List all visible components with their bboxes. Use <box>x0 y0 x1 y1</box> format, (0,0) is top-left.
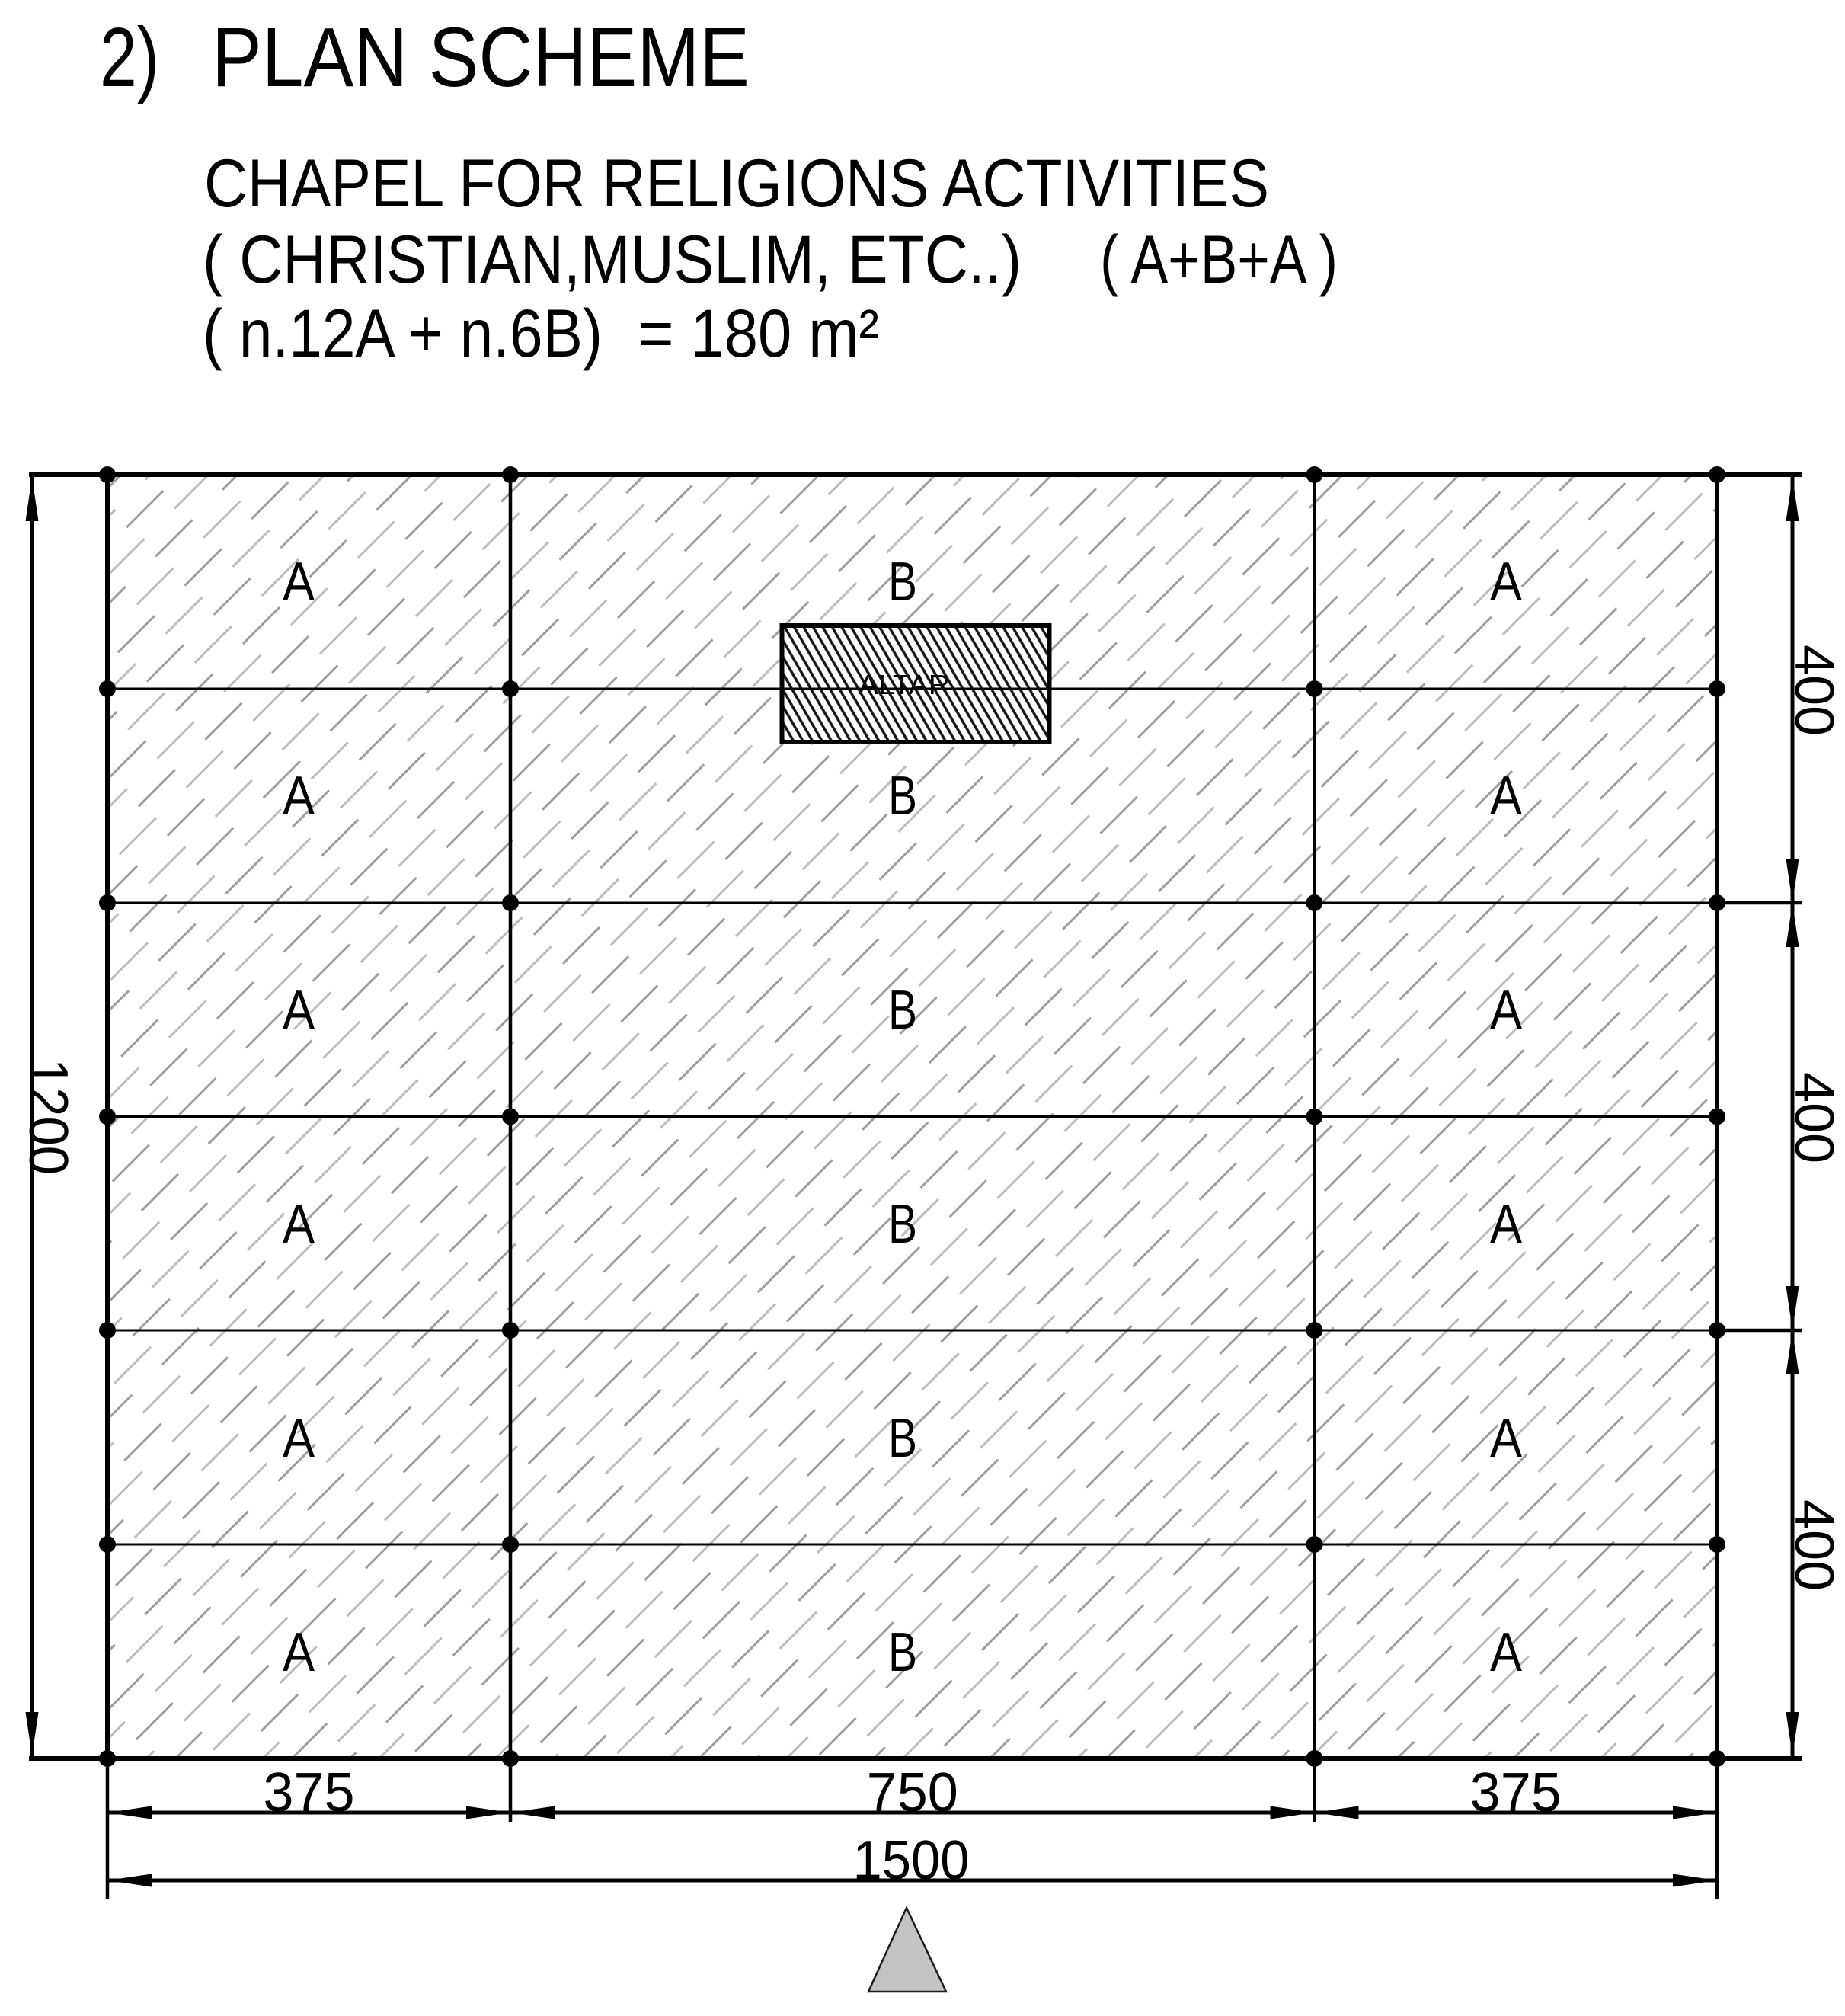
svg-text:B: B <box>888 552 917 613</box>
svg-text:A: A <box>1490 766 1522 827</box>
svg-text:A: A <box>283 980 315 1041</box>
svg-text:375: 375 <box>263 1762 354 1823</box>
svg-text:1200: 1200 <box>18 1058 78 1175</box>
svg-text:A: A <box>1490 552 1522 613</box>
svg-text:( A+B+A ): ( A+B+A ) <box>1100 221 1338 297</box>
svg-text:400: 400 <box>1783 1072 1844 1163</box>
svg-text:A: A <box>283 1622 315 1683</box>
svg-text:A: A <box>1490 980 1522 1041</box>
svg-text:375: 375 <box>1470 1762 1562 1823</box>
svg-text:A: A <box>1490 1622 1522 1683</box>
svg-text:2): 2) <box>100 11 159 104</box>
svg-text:B: B <box>888 980 917 1041</box>
svg-text:B: B <box>888 1622 917 1683</box>
svg-text:750: 750 <box>867 1762 958 1823</box>
svg-text:400: 400 <box>1783 645 1844 736</box>
svg-text:B: B <box>888 1408 917 1469</box>
svg-text:A: A <box>1490 1408 1522 1469</box>
svg-text:400: 400 <box>1783 1499 1844 1591</box>
svg-text:A: A <box>283 766 315 827</box>
svg-text:B: B <box>888 766 917 827</box>
svg-text:A: A <box>283 552 315 613</box>
svg-text:( CHRISTIAN,MUSLIM, ETC..): ( CHRISTIAN,MUSLIM, ETC..) <box>203 221 1022 297</box>
svg-text:( n.12A + n.6B): ( n.12A + n.6B) <box>203 295 603 371</box>
svg-text:CHAPEL FOR RELIGIONS ACTIVITIE: CHAPEL FOR RELIGIONS ACTIVITIES <box>204 145 1269 221</box>
svg-text:PLAN SCHEME: PLAN SCHEME <box>212 11 750 104</box>
svg-text:A: A <box>283 1194 315 1255</box>
svg-text:B: B <box>888 1194 917 1255</box>
svg-text:1500: 1500 <box>853 1830 970 1891</box>
svg-text:= 180 m²: = 180 m² <box>638 295 879 371</box>
svg-text:A: A <box>283 1408 315 1469</box>
svg-text:A: A <box>1490 1194 1522 1255</box>
